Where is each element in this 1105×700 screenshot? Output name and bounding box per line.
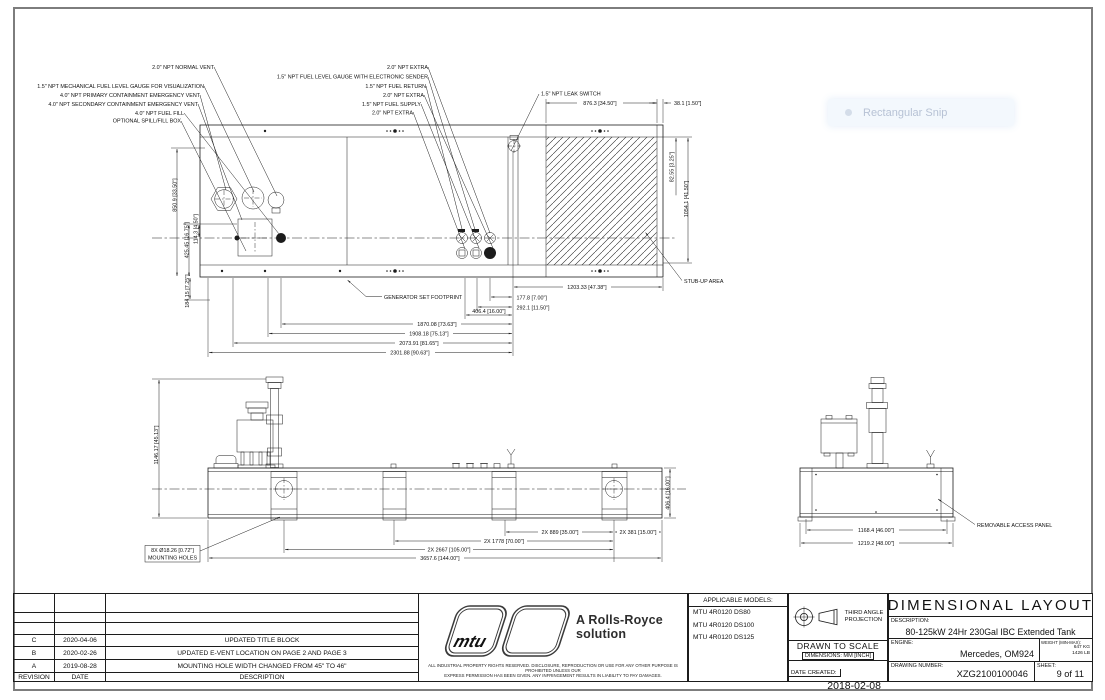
rev-description: UPDATED E-VENT LOCATION ON PAGE 2 AND PA…	[106, 647, 418, 659]
tagline-line1: A Rolls-Royce	[576, 614, 663, 628]
title-info-block: DIMENSIONAL LAYOUT DESCRIPTION: 80-125kW…	[888, 593, 1093, 682]
dim-406-top: 406.4 [16.00"]	[472, 309, 506, 315]
projection-line2: PROJECTION	[845, 617, 884, 624]
dim-mounting-holes-2: MOUNTING HOLES	[148, 556, 198, 562]
sheet-label: SHEET:	[1035, 662, 1092, 669]
tank-outline-front	[152, 468, 686, 518]
callout-normal-vent: 2.0" NPT NORMAL VENT	[152, 65, 215, 71]
dim-2667: 2X 2667 [105.00"]	[428, 548, 471, 554]
dim-114: 114.3 [4.50"]	[194, 214, 200, 244]
fuel-fittings-left	[211, 187, 286, 256]
rev-date: 2020-04-06	[55, 635, 106, 646]
dim-381: 2X 381 [15.00"]	[620, 530, 657, 536]
date-created-block: DATE CREATED: 2018-02-08	[789, 661, 887, 692]
dimensions-units-label: DIMENSIONS: MM [INCH]	[802, 652, 874, 660]
model-item: MTU 4R0120 DS80	[689, 607, 787, 620]
projection-scale-block: THIRD ANGLE PROJECTION DRAWN TO SCALE DI…	[788, 593, 888, 682]
dim-1908: 1908.18 [75.13"]	[409, 332, 449, 338]
model-item: MTU 4R0120 DS100	[689, 620, 787, 633]
fuel-fittings-right-cluster	[457, 229, 497, 259]
top-equipment-front	[214, 377, 617, 468]
callout-secondary-vent: 4.0" NPT SECONDARY CONTAINMENT EMERGENCY…	[48, 102, 198, 108]
dim-876: 876.3 [34.50"]	[583, 101, 617, 107]
sheet-block: SHEET: 9 of 11	[1034, 662, 1092, 681]
dim-292: 292.1 [11.50"]	[517, 305, 550, 311]
callout-primary-vent: 4.0" NPT PRIMARY CONTAINMENT EMERGENCY V…	[60, 93, 201, 99]
snip-mode-label: Rectangular Snip	[863, 107, 947, 119]
dim-mounting-holes-1: 8X Ø18.26 [0.72"]	[151, 548, 194, 554]
rev-letter: A	[14, 660, 55, 672]
projection-line1: THIRD ANGLE	[845, 610, 884, 617]
callout-extra-1: 2.0" NPT EXTRA	[387, 65, 428, 71]
dim-38: 38.1 [1.50"]	[674, 101, 702, 107]
description-header: DESCRIPTION	[106, 673, 418, 681]
access-panel-label: REMOVABLE ACCESS PANEL	[977, 523, 1052, 529]
dim-1219: 1219.2 [48.00"]	[858, 541, 895, 547]
rev-date: 2020-02-26	[55, 647, 106, 659]
callout-fuel-return: 1.5" NPT FUEL RETURN	[365, 84, 426, 90]
top-equipment-end	[821, 378, 935, 469]
end-view: 1168.4 [46.00"] 1219.2 [48.00"] REMOVABL…	[798, 378, 1052, 548]
legal-disclaimer: ALL INDUSTRIAL PROPERTY RIGHTS RESERVED.…	[424, 663, 681, 678]
dim-406-front: 406.4 [16.00"]	[666, 476, 672, 510]
dim-425: 425.45 [16.75"]	[185, 221, 191, 258]
dim-1054: 1054.1 [41.50"]	[684, 180, 690, 217]
dim-2073: 2073.91 [81.65"]	[399, 341, 439, 347]
tank-outline-end	[798, 468, 955, 521]
revision-row-b: B 2020-02-26 UPDATED E-VENT LOCATION ON …	[14, 646, 418, 659]
end-view-dimensions: 1168.4 [46.00"] 1219.2 [48.00"]	[800, 519, 953, 547]
sheet-title: DIMENSIONAL LAYOUT	[889, 594, 1092, 617]
dim-177: 177.8 [7.00"]	[517, 295, 548, 301]
drawn-to-scale-block: DRAWN TO SCALE DIMENSIONS: MM [INCH]	[789, 641, 887, 661]
sheet-value: 9 of 11	[1057, 669, 1084, 679]
engine-block: ENGINE: Mercedes, OM924	[889, 639, 1039, 661]
access-panel-callout: REMOVABLE ACCESS PANEL	[938, 499, 1052, 529]
date-created-value: 2018-02-08	[789, 679, 887, 692]
description-block: DESCRIPTION: 80-125kW 24Hr 230Gal IBC Ex…	[889, 617, 1092, 639]
stub-up-area-hatch	[547, 137, 657, 265]
disclaimer-line1: ALL INDUSTRIAL PROPERTY RIGHTS RESERVED.…	[424, 663, 681, 673]
third-angle-projection-label: THIRD ANGLE PROJECTION	[845, 610, 884, 623]
fuel-fill-port	[276, 233, 286, 243]
date-created-label: DATE CREATED:	[789, 669, 841, 677]
rev-description: MOUNTING HOLE WIDTH CHANGED FROM 45" TO …	[106, 660, 418, 672]
vent-stack-cap-end	[871, 378, 884, 384]
dim-850: 850.9 [33.50"]	[173, 178, 179, 212]
mounting-pads	[271, 472, 627, 521]
mtu-logo: mtu	[437, 602, 587, 664]
drawing-sheet: 2.0" NPT NORMAL VENT 1.5" NPT MECHANICAL…	[0, 0, 1105, 700]
snip-mode-icon	[845, 109, 852, 116]
model-item: MTU 4R0120 DS125	[689, 632, 787, 645]
callout-leaders	[181, 67, 539, 251]
description-label: DESCRIPTION:	[889, 617, 1092, 624]
front-view: 1146.17 [45.13"] 8X Ø18.26 [0.72"] MOUNT…	[145, 377, 686, 562]
revision-row-empty	[14, 594, 418, 612]
third-angle-projection: THIRD ANGLE PROJECTION	[789, 594, 887, 641]
revision-row-empty	[14, 622, 418, 634]
dim-184: 184.15 [7.25"]	[185, 274, 191, 308]
revision-header: REVISION	[14, 673, 55, 681]
callout-mech-gauge: 1.5" NPT MECHANICAL FUEL LEVEL GAUGE FOR…	[37, 84, 204, 90]
weight-lb: 1426 LB	[1072, 651, 1090, 656]
rev-description: UPDATED TITLE BLOCK	[106, 635, 418, 646]
callout-extra-2: 2.0" NPT EXTRA	[383, 93, 424, 99]
dim-1168: 1168.4 [46.00"]	[858, 528, 894, 534]
brand-block: mtu A Rolls-Royce solution ALL INDUSTRIA…	[418, 593, 688, 682]
dim-889: 2X 889 [35.00"]	[542, 530, 579, 536]
drawing-number-value: XZG2100100046	[957, 668, 1028, 679]
drawing-number-block: DRAWING NUMBER: XZG2100100046	[889, 662, 1034, 681]
rectangular-snip-menu-item[interactable]: Rectangular Snip	[828, 99, 1014, 126]
battery-box	[821, 419, 857, 453]
revision-header-row: REVISION DATE DESCRIPTION	[14, 672, 418, 681]
footprint-callout: GENERATOR SET FOOTPRINT	[348, 280, 463, 301]
weight-kg: 647 KG	[1074, 645, 1090, 650]
dim-2301: 2301.88 [90.63"]	[390, 351, 430, 357]
applicable-models-block: APPLICABLE MODELS: MTU 4R0120 DS80 MTU 4…	[688, 593, 788, 682]
callout-fuel-supply: 1.5" NPT FUEL SUPPLY	[362, 102, 421, 108]
tagline-line2: solution	[576, 628, 663, 642]
rev-letter: C	[14, 635, 55, 646]
front-view-dimensions: 1146.17 [45.13"] 8X Ø18.26 [0.72"] MOUNT…	[145, 379, 676, 562]
rolls-royce-tagline: A Rolls-Royce solution	[576, 614, 663, 641]
rev-date: 2019-08-28	[55, 660, 106, 672]
disclaimer-line2: EXPRESS PERMISSION HAS BEEN GIVEN. ANY I…	[424, 673, 681, 678]
revision-row-c: C 2020-04-06 UPDATED TITLE BLOCK	[14, 634, 418, 646]
dim-1778: 2X 1778 [70.00"]	[484, 539, 524, 545]
revision-row-empty	[14, 612, 418, 622]
leak-switch-fitting	[507, 136, 521, 154]
spill-box-front	[237, 420, 273, 452]
callout-spill-box: OPTIONAL SPILL/FILL BOX	[113, 119, 182, 125]
drawn-to-scale-label: DRAWN TO SCALE	[797, 641, 879, 651]
dim-82: 82.55 [3.25"]	[670, 151, 676, 182]
engine-value: Mercedes, OM924	[960, 649, 1034, 659]
date-header: DATE	[55, 673, 106, 681]
weight-block: WEIGHT (MIN-MAX): 647 KG 1426 LB	[1039, 639, 1092, 661]
stub-up-label: STUB-UP AREA	[684, 279, 724, 285]
rev-letter: B	[14, 647, 55, 659]
revision-table: C 2020-04-06 UPDATED TITLE BLOCK B 2020-…	[13, 593, 419, 682]
description-value: 80-125kW 24Hr 230Gal IBC Extended Tank	[889, 627, 1092, 637]
revision-row-a: A 2019-08-28 MOUNTING HOLE WIDTH CHANGED…	[14, 659, 418, 672]
third-angle-projection-icon	[793, 605, 841, 629]
engine-label: ENGINE:	[889, 639, 1039, 646]
callout-labels: 2.0" NPT NORMAL VENT 1.5" NPT MECHANICAL…	[37, 65, 601, 125]
callout-fuel-fill: 4.0" NPT FUEL FILL	[135, 111, 184, 117]
dim-3657: 3657.6 [144.00"]	[420, 556, 460, 562]
callout-electronic-sender: 1.5" NPT FUEL LEVEL GAUGE WITH ELECTRONI…	[277, 75, 428, 81]
dim-1203: 1203.33 [47.38"]	[567, 285, 607, 291]
callout-leak-switch: 1.5" NPT LEAK SWITCH	[541, 92, 601, 98]
dim-1146: 1146.17 [45.13"]	[154, 425, 160, 464]
vent-stack-cap	[266, 377, 283, 383]
top-view: 2.0" NPT NORMAL VENT 1.5" NPT MECHANICAL…	[37, 65, 724, 357]
mtu-logo-text: mtu	[451, 631, 489, 650]
applicable-models-header: APPLICABLE MODELS:	[689, 594, 787, 607]
generator-footprint-label: GENERATOR SET FOOTPRINT	[384, 295, 463, 301]
callout-extra-3: 2.0" NPT EXTRA	[372, 111, 413, 117]
dim-1870: 1870.08 [73.63"]	[417, 322, 457, 328]
